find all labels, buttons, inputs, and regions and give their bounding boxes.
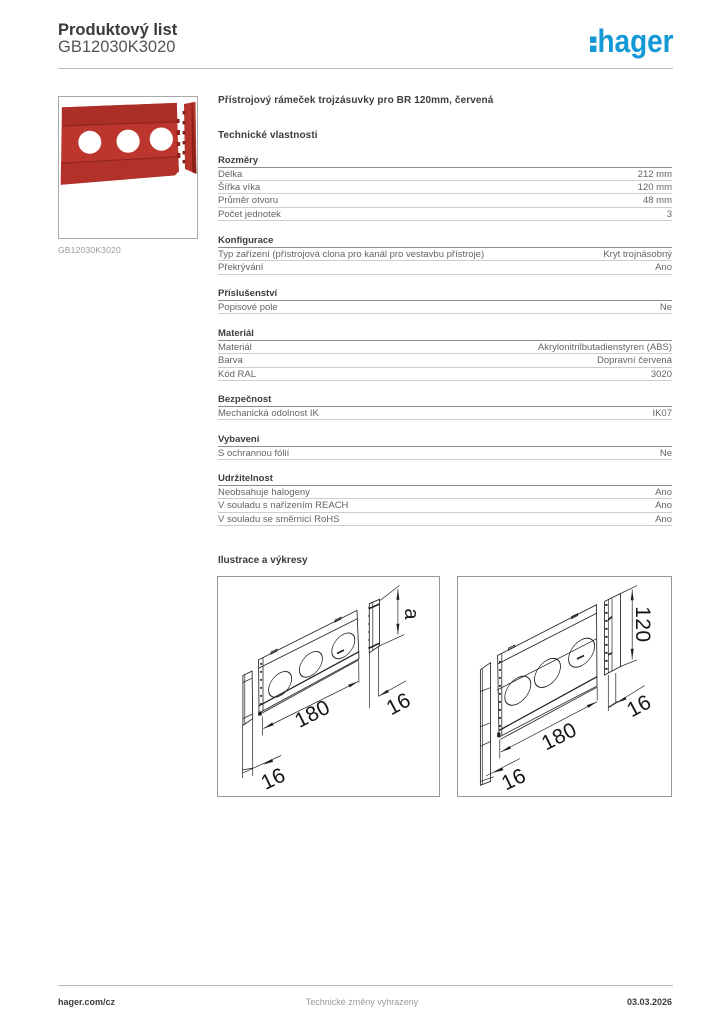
svg-text:a: a xyxy=(400,608,422,620)
svg-text:hager: hager xyxy=(598,23,674,59)
svg-text:180: 180 xyxy=(538,718,581,755)
svg-text:16: 16 xyxy=(258,764,290,795)
svg-text:16: 16 xyxy=(383,688,415,720)
svg-text:180: 180 xyxy=(291,696,334,733)
svg-text:16: 16 xyxy=(498,764,530,795)
svg-text:16: 16 xyxy=(623,690,655,722)
svg-text:120: 120 xyxy=(631,606,654,642)
